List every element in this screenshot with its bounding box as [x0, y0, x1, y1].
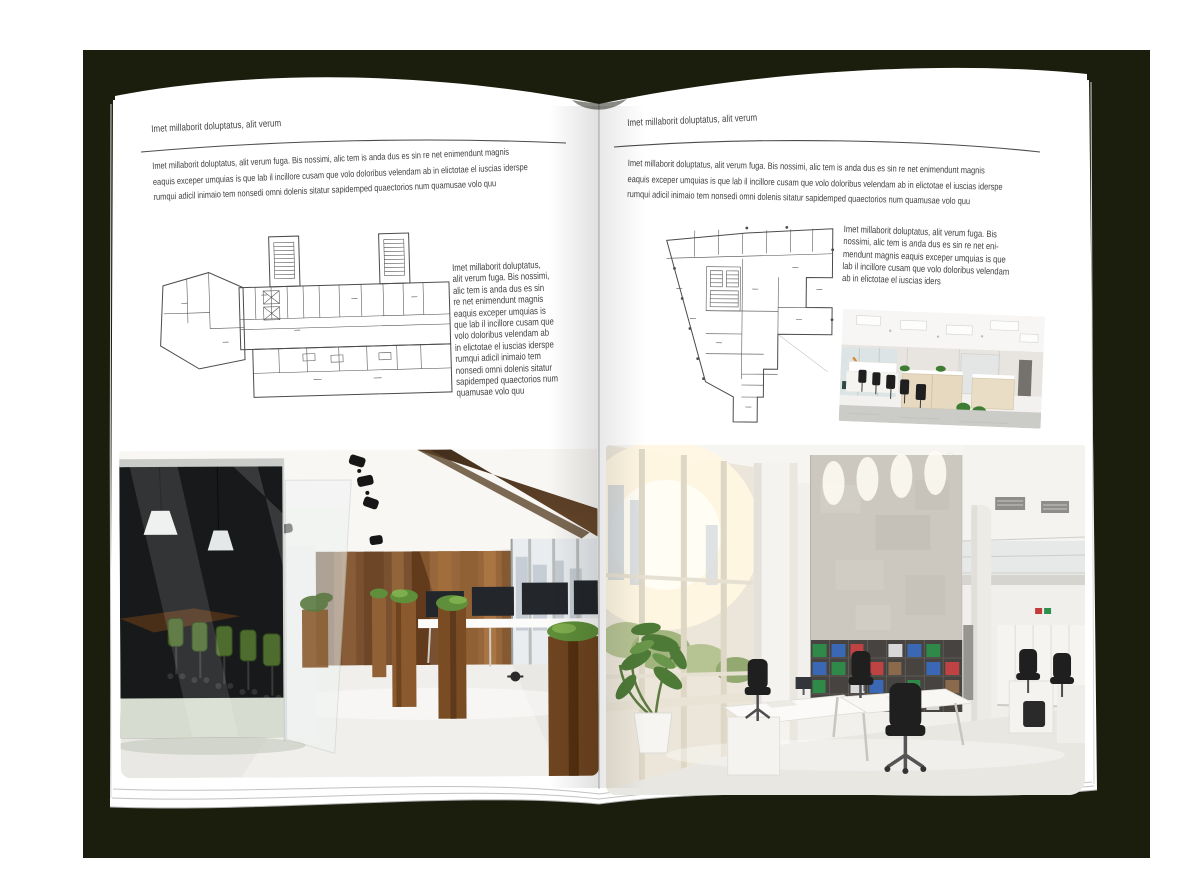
- right-page-intro: Imet millaborit doluptatus, alit verum f…: [627, 156, 1003, 210]
- right-floor-plan: [645, 218, 841, 426]
- left-page-side-text: Imet millaborit doluptatus, alit verum f…: [452, 259, 559, 399]
- safety-sign-green: [1044, 608, 1051, 614]
- glass-meeting-room: [119, 458, 353, 755]
- brochure-mockup-scene: Imet millaborit doluptatus, alit verum I…: [0, 0, 1200, 891]
- left-page-photo: [119, 449, 599, 778]
- waste-bin: [1023, 701, 1045, 727]
- right-page-photo-small: [839, 309, 1045, 429]
- concrete-wall: [811, 451, 963, 640]
- right-page-side-text: Imet millaborit doluptatus, alit verum f…: [842, 223, 1011, 290]
- left-floor-plan: [149, 226, 454, 418]
- right-page-photo-large: [606, 445, 1085, 795]
- safety-sign-red: [1035, 608, 1042, 614]
